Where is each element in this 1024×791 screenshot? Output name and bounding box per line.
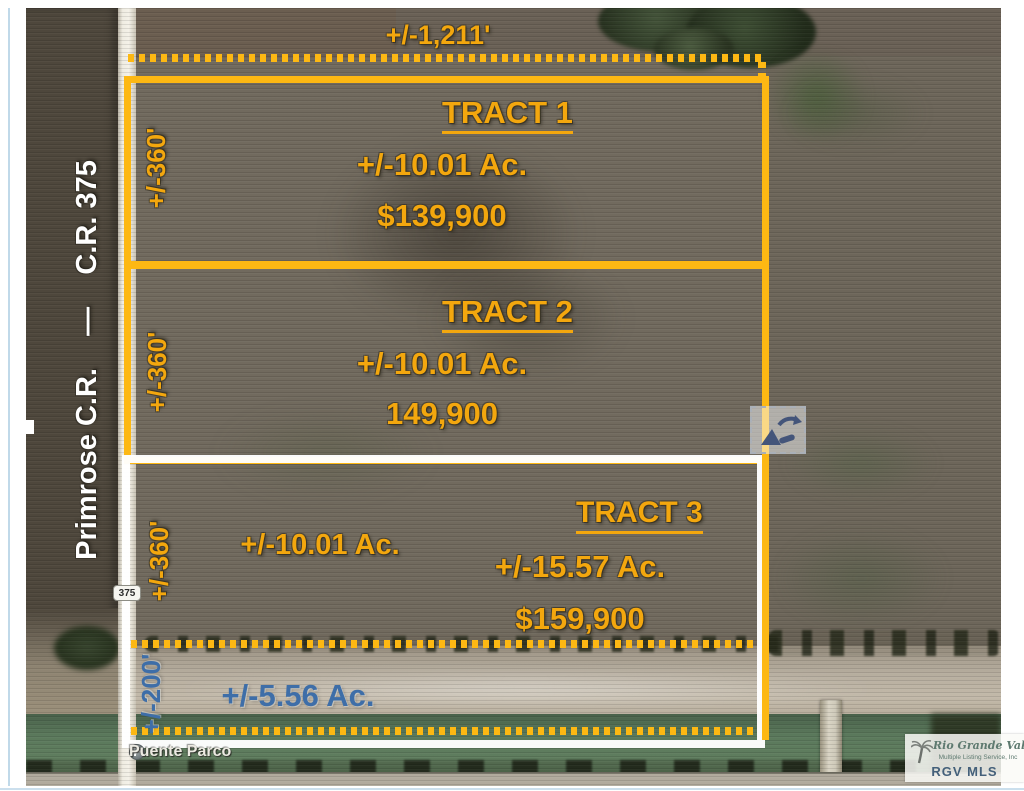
listing-aerial-map: +/-1,211' TRACT 1 +/-10.01 Ac. $139,900 … [0, 0, 1024, 791]
tract-3-price: $159,900 [515, 602, 644, 636]
logo-subtitle: Multiple Listing Service, Inc [931, 754, 1024, 761]
tract-2-price: 149,900 [386, 397, 498, 431]
tract-2-depth-dimension: +/-360' [141, 312, 173, 432]
page-border [0, 0, 26, 791]
tract-1-acreage: +/-10.01 Ac. [357, 148, 527, 182]
boundary-dotted-corner [758, 62, 766, 84]
boundary-dotted-line-top [128, 54, 766, 62]
bottom-road-name: Puente Parco [129, 743, 231, 761]
broken-image-icon [750, 406, 806, 454]
edge-highlight [0, 788, 1024, 790]
tract-3-depth-dimension: +/-360' [143, 501, 175, 621]
palm-tree-icon [911, 738, 933, 764]
edge-notch [22, 420, 34, 434]
page-border [1001, 0, 1024, 791]
broken-image-glyph [757, 413, 803, 449]
tract-2-acreage: +/-10.01 Ac. [357, 347, 527, 381]
edge-highlight [8, 8, 10, 786]
bottom-strip-depth-dimension: +/-200' [135, 634, 167, 754]
logo-script-text: Rio Grande Valley [933, 739, 1023, 752]
tract-1-2-divider-line [124, 261, 769, 269]
top-width-dimension: +/-1,211' [386, 20, 491, 51]
tract-1-price: $139,900 [377, 199, 506, 233]
route-375-shield: 375 [113, 585, 141, 601]
tract-1-depth-dimension: +/-360' [140, 108, 172, 228]
bottom-strip-acreage: +/-5.56 Ac. [221, 678, 374, 714]
strip-dashed-line-upper [131, 640, 757, 648]
rgv-mls-watermark: Rio Grande Valley Multiple Listing Servi… [905, 734, 1024, 782]
left-road-name-label: Primrose C.R. — C.R. 375 [70, 160, 104, 560]
tract-3-secondary-acreage: +/-10.01 Ac. [240, 529, 399, 562]
page-border [0, 0, 1024, 8]
logo-abbr: RGV MLS [905, 764, 1024, 779]
tract-3-acreage: +/-15.57 Ac. [495, 550, 665, 584]
strip-dashed-line-lower [131, 727, 757, 735]
tract-3-east-boundary-line [762, 455, 769, 740]
